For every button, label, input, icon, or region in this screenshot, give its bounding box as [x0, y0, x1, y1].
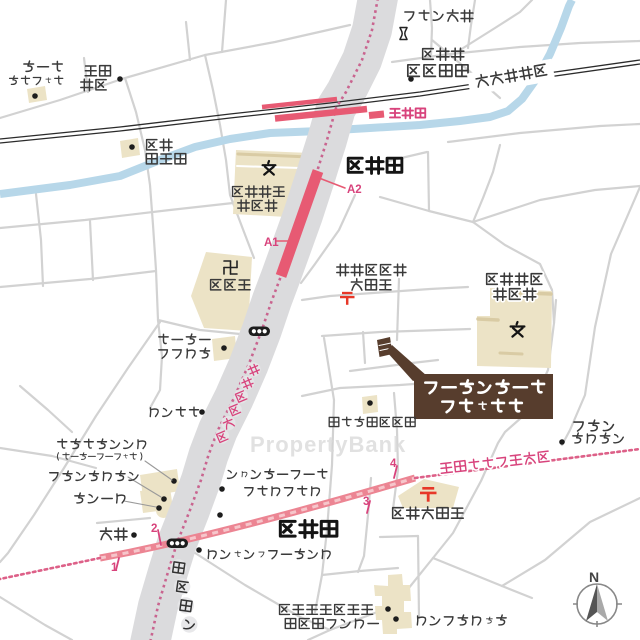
svg-text:A2: A2 — [347, 184, 362, 196]
svg-text:N: N — [589, 569, 599, 585]
svg-text:PropertyBank: PropertyBank — [250, 432, 406, 457]
svg-text:1: 1 — [111, 562, 118, 574]
svg-text:4: 4 — [390, 458, 397, 470]
svg-text:2: 2 — [151, 523, 157, 535]
svg-text:3: 3 — [363, 496, 369, 508]
svg-text:A1: A1 — [264, 237, 279, 249]
